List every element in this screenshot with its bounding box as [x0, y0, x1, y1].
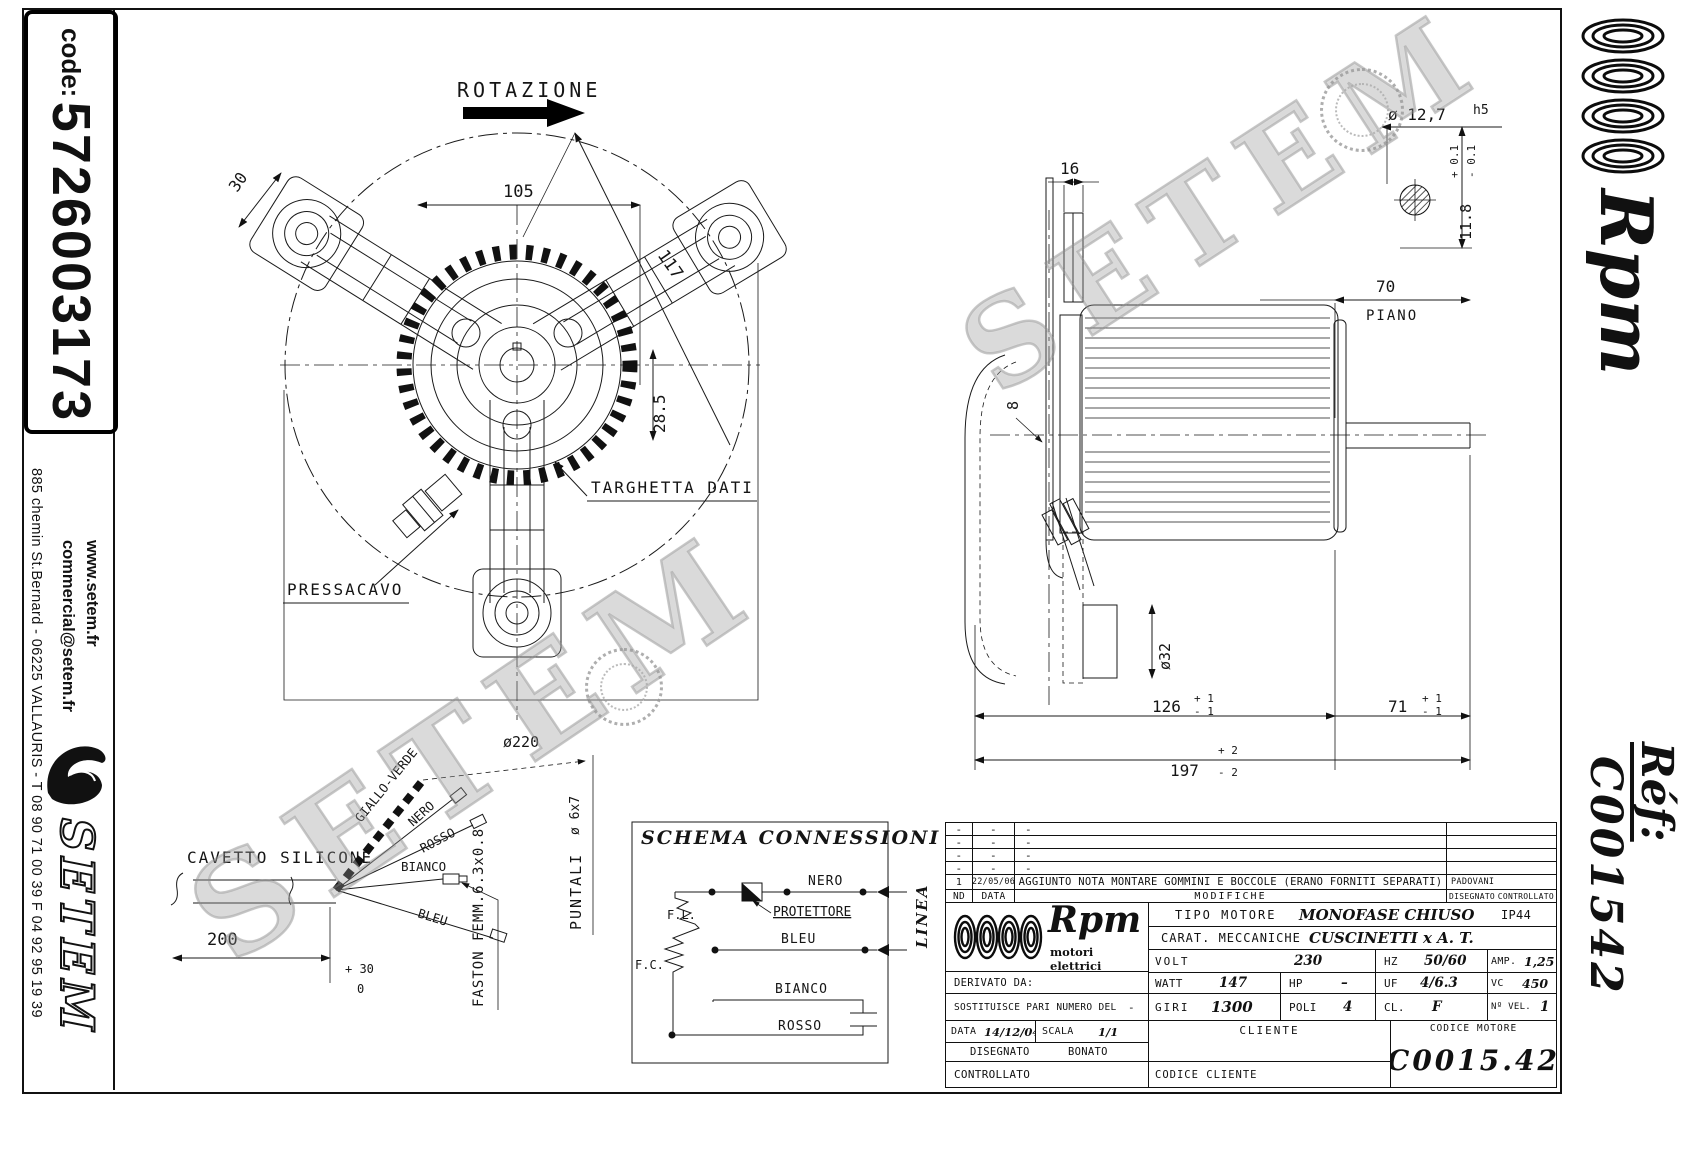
cable-gland	[389, 471, 464, 542]
dim-197-tol-minus: - 2	[1218, 766, 1238, 779]
client-label: CLIENTE	[1239, 1021, 1299, 1037]
tips-dim-label: ø 6x7	[568, 796, 583, 835]
brand-cell: Rpm motori elettrici	[945, 902, 1149, 972]
rotation-label: ROTAZIONE	[457, 78, 601, 102]
uf-value: 4/6.3	[1420, 975, 1458, 991]
dim-200: 200	[207, 930, 238, 950]
dim-197: 197	[1170, 761, 1199, 780]
rev-col-date: DATA	[981, 891, 1005, 902]
dim-shaft-fit: h5	[1473, 103, 1489, 118]
cable-label: CAVETTO SILICONE	[187, 848, 373, 867]
connection-schema: SCHEMA CONNESSIONI F.L. F.C. PROTETTORE …	[625, 780, 945, 1070]
schema-bleu: BLEU	[781, 932, 816, 947]
drawn-value: BONATO	[1068, 1046, 1108, 1058]
fl-label: F.L.	[667, 908, 696, 922]
class-value: F	[1432, 999, 1442, 1015]
schema-bianco: BIANCO	[775, 982, 828, 997]
dim-key-tol-minus: - 0.1	[1465, 145, 1478, 178]
rev-col-drawn: DISEGNATO	[1447, 892, 1495, 901]
rpm-brand-name: Rpm	[1584, 189, 1669, 449]
wire-giallo-verde: GIALLO-VERDE	[336, 745, 585, 890]
dim-126: 126	[1152, 697, 1181, 716]
client-code-label: CODICE CLIENTE	[1149, 1069, 1258, 1081]
dim-117: 117	[653, 246, 687, 283]
speeds-value: 1	[1540, 999, 1549, 1015]
amp-value: 1,25	[1524, 954, 1554, 969]
watt-label: WATT	[1149, 977, 1183, 990]
drawn-label: DISEGNATO	[946, 1046, 1030, 1058]
shaft-section	[1394, 179, 1436, 221]
mount-bracket	[965, 178, 1083, 705]
fc-label: F.C.	[635, 958, 664, 972]
rpm-coils-small-icon	[952, 913, 1044, 961]
mech-label: CARAT. MECCANICHE	[1149, 931, 1301, 945]
speeds-label: Nº VEL.	[1488, 1002, 1531, 1012]
hz-label: HZ	[1376, 955, 1398, 968]
dim-70: 70	[1376, 277, 1395, 296]
motor-type-value: MONOFASE CHIUSO	[1299, 906, 1474, 924]
rpm-brand-strip: Rpm	[1568, 14, 1678, 449]
rev1-no: 1	[956, 877, 962, 888]
dim-126-tol-minus: - 1	[1194, 705, 1214, 718]
schema-rosso: ROSSO	[778, 1019, 822, 1034]
volt-value: 230	[1294, 953, 1322, 969]
dim-16: 16	[1060, 159, 1079, 178]
date-value: 14/12/04	[984, 1025, 1036, 1039]
dim-key: 11.8	[1457, 204, 1475, 240]
dim-197-tol-plus: + 2	[1218, 744, 1238, 757]
svg-text:BIANCO: BIANCO	[401, 859, 446, 874]
checked-label: CONTROLLATO	[946, 1068, 1030, 1081]
rev1-desc: AGGIUNTO NOTA MONTARE GOMMINI E BOCCOLE …	[1019, 876, 1443, 888]
date-label: DATA	[946, 1026, 976, 1037]
dim-shaft-dia: ø 12,7	[1388, 105, 1446, 124]
brand-name: Rpm	[1048, 902, 1141, 941]
code-label: code:	[56, 28, 86, 97]
amp-label: AMP.	[1488, 956, 1516, 967]
mount-arm-upper-right	[524, 177, 790, 385]
motor-body	[990, 305, 1490, 540]
dim-28-5: 28.5	[650, 394, 669, 433]
dim-71-tol-minus: - 1	[1422, 705, 1442, 718]
schema-border	[632, 822, 888, 1063]
vc-value: 450	[1522, 976, 1548, 991]
fan-front-view: ROTAZIONE 105 117 30 28.5 ø220 TARGHETTA…	[225, 55, 795, 765]
svg-text:BLEU: BLEU	[416, 906, 449, 929]
volt-label: VOLT	[1149, 955, 1190, 968]
rev-dash: -	[956, 823, 963, 836]
rev1-date: 22/05/06	[972, 877, 1015, 887]
setem-logo: SETEM	[40, 735, 110, 1078]
reference-block: Réf: C001542	[1580, 742, 1682, 1082]
motor-code-value: C0015.42	[1390, 1044, 1557, 1077]
dim-boss-32: ø32	[1156, 643, 1174, 670]
motor-side-view: ø32 16 8 ø 12,7 h5 + 0.1 - 0.1 11.8 70 P…	[930, 70, 1505, 730]
reference-value: C001542	[1580, 756, 1631, 996]
dim-126-tol-plus: + 1	[1194, 692, 1214, 705]
scale-value: 1/1	[1098, 1025, 1118, 1039]
tips-label: PUNTALI	[567, 853, 585, 930]
class-label: CL.	[1376, 1001, 1405, 1014]
motor-type-label: TIPO MOTORE	[1149, 908, 1276, 922]
protection-value: IP44	[1501, 908, 1531, 922]
plane-label: PIANO	[1366, 308, 1418, 324]
rev-col-desc: MODIFICHE	[1194, 891, 1266, 902]
rev-col-no: ND	[953, 891, 965, 902]
dim-30: 30	[225, 169, 252, 196]
protector-label: PROTETTORE	[773, 905, 851, 920]
dim-71: 71	[1388, 697, 1407, 716]
rev-col-checked: CONTROLLATO	[1498, 892, 1556, 901]
reference-label: Réf:	[1631, 742, 1682, 842]
mech-value: CUSCINETTI x A. T.	[1309, 929, 1474, 947]
dim-8: 8	[1004, 401, 1022, 410]
rev1-by: PADOVANI	[1447, 877, 1494, 887]
replaces-value: -	[1128, 1001, 1135, 1014]
uf-label: UF	[1376, 977, 1398, 990]
setem-logo-icon	[40, 735, 110, 813]
hp-label: HP	[1281, 977, 1303, 990]
code-box: code: 5726003173	[24, 10, 118, 434]
faston-label: FASTON FEMM.6.3x0.8	[471, 828, 487, 1007]
rotation-arrow-icon	[463, 99, 585, 127]
derived-label: DERIVATO DA:	[946, 977, 1033, 989]
rpm-coils-icon	[1568, 14, 1678, 184]
schema-nero: NERO	[808, 874, 843, 889]
dim-105: 105	[503, 182, 534, 202]
setem-logo-text: SETEM	[50, 818, 104, 1078]
poles-label: POLI	[1281, 1001, 1317, 1014]
vc-label: VC	[1488, 978, 1504, 989]
scale-label: SCALA	[1036, 1026, 1074, 1037]
replaces-label: SOSTITUISCE PARI NUMERO DEL	[946, 1002, 1117, 1013]
hp-value: –	[1341, 975, 1348, 991]
capacitor-block: ø32	[1039, 493, 1174, 678]
rpm-label: GIRI	[1149, 1001, 1190, 1014]
cable-detail: CAVETTO SILICONE GIALLO-VERDE NERO ROSSO…	[165, 695, 610, 1010]
code-value: 5726003173	[41, 102, 101, 422]
gland-label: PRESSACAVO	[287, 580, 403, 599]
schema-title: SCHEMA CONNESSIONI	[641, 827, 940, 849]
brand-sub: motori elettrici	[1050, 945, 1148, 972]
drawing-sheet: code: 5726003173 885 chemin St.Bernard -…	[0, 0, 1683, 1153]
dim-71-tol-plus: + 1	[1422, 692, 1442, 705]
poles-value: 4	[1343, 999, 1352, 1015]
linea-label: LINEA	[913, 884, 931, 949]
hz-value: 50/60	[1424, 953, 1467, 969]
rpm-value: 1300	[1211, 998, 1253, 1016]
title-block: - - - - - - - - - - - - 1 22/05/06 AGGIU…	[945, 822, 1557, 1088]
nameplate-label: TARGHETTA DATI	[591, 478, 754, 497]
dim-key-tol-plus: + 0.1	[1448, 145, 1461, 178]
dim-200-tol-plus: + 30	[345, 962, 374, 976]
dim-200-tol-minus: 0	[357, 982, 364, 996]
svg-text:ROSSO: ROSSO	[417, 825, 457, 856]
motor-code-label: CODICE MOTORE	[1430, 1021, 1517, 1034]
watt-value: 147	[1219, 975, 1247, 991]
